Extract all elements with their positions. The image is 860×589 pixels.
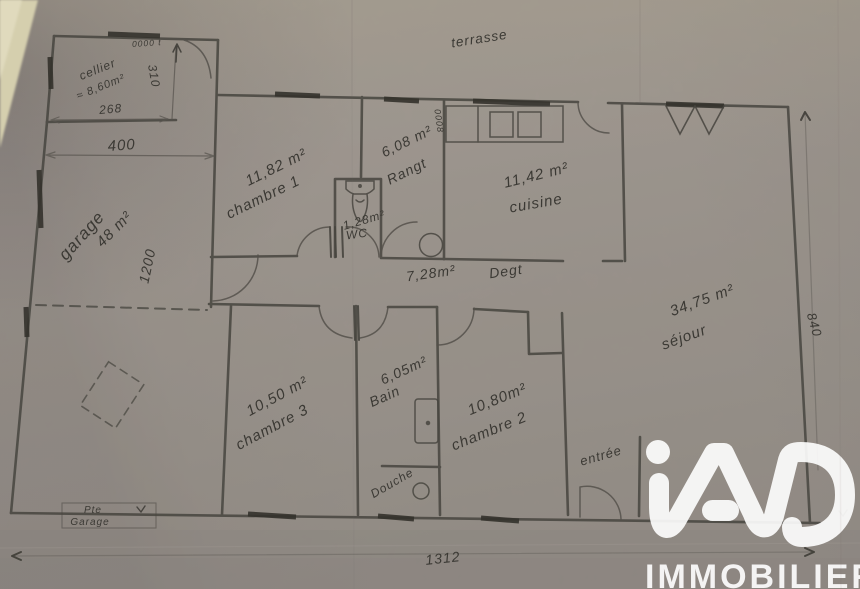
svg-text:Garage: Garage bbox=[70, 517, 109, 528]
svg-text:0000 t: 0000 t bbox=[132, 37, 162, 49]
svg-text:IMMOBILIER: IMMOBILIER bbox=[645, 558, 860, 589]
svg-text:268: 268 bbox=[98, 101, 123, 117]
svg-text:Pte: Pte bbox=[84, 505, 102, 516]
svg-text:400: 400 bbox=[107, 136, 136, 155]
